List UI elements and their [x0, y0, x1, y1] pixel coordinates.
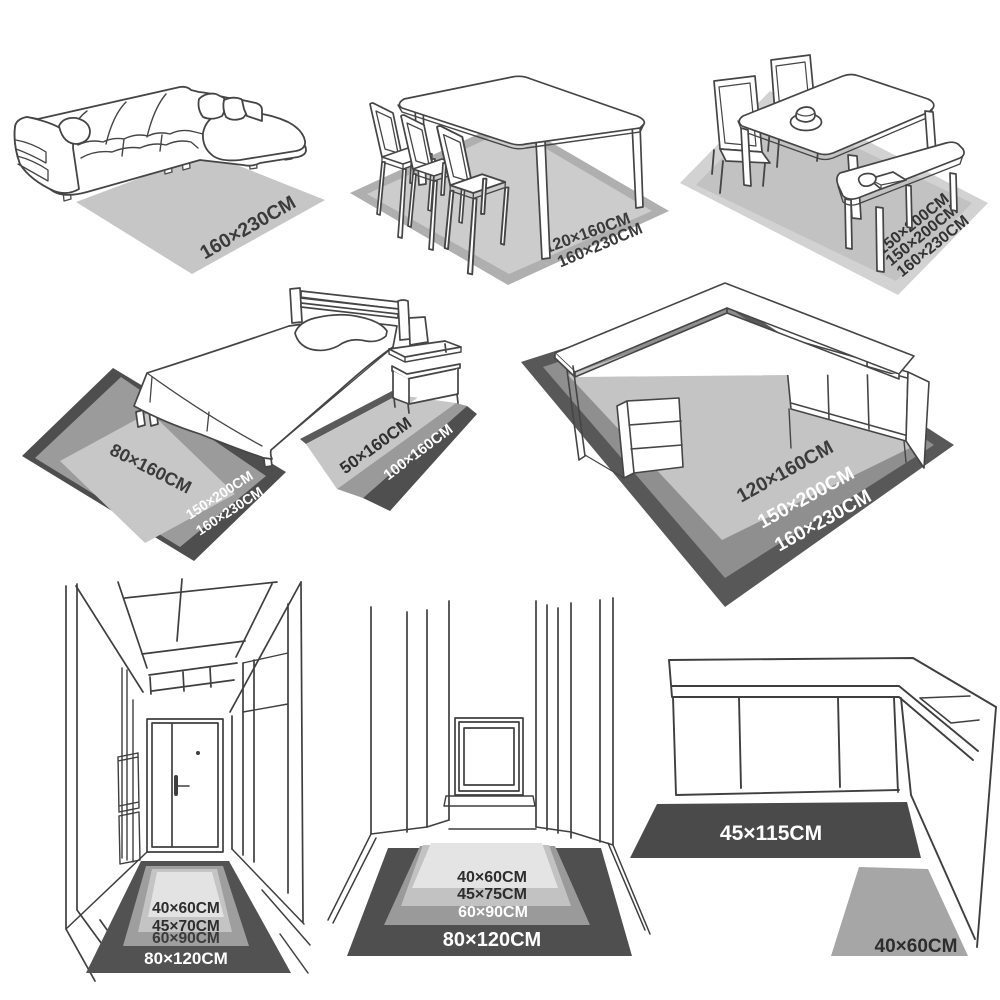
- svg-text:40×60CM: 40×60CM: [457, 869, 527, 886]
- svg-text:45×115CM: 45×115CM: [720, 822, 822, 845]
- svg-text:40×60CM: 40×60CM: [875, 936, 958, 957]
- svg-text:60×90CM: 60×90CM: [458, 904, 528, 921]
- svg-text:80×120CM: 80×120CM: [443, 929, 541, 951]
- svg-text:40×60CM: 40×60CM: [152, 900, 220, 917]
- svg-text:80×120CM: 80×120CM: [144, 949, 228, 968]
- svg-text:45×75CM: 45×75CM: [457, 886, 527, 903]
- svg-text:60×90CM: 60×90CM: [152, 930, 220, 947]
